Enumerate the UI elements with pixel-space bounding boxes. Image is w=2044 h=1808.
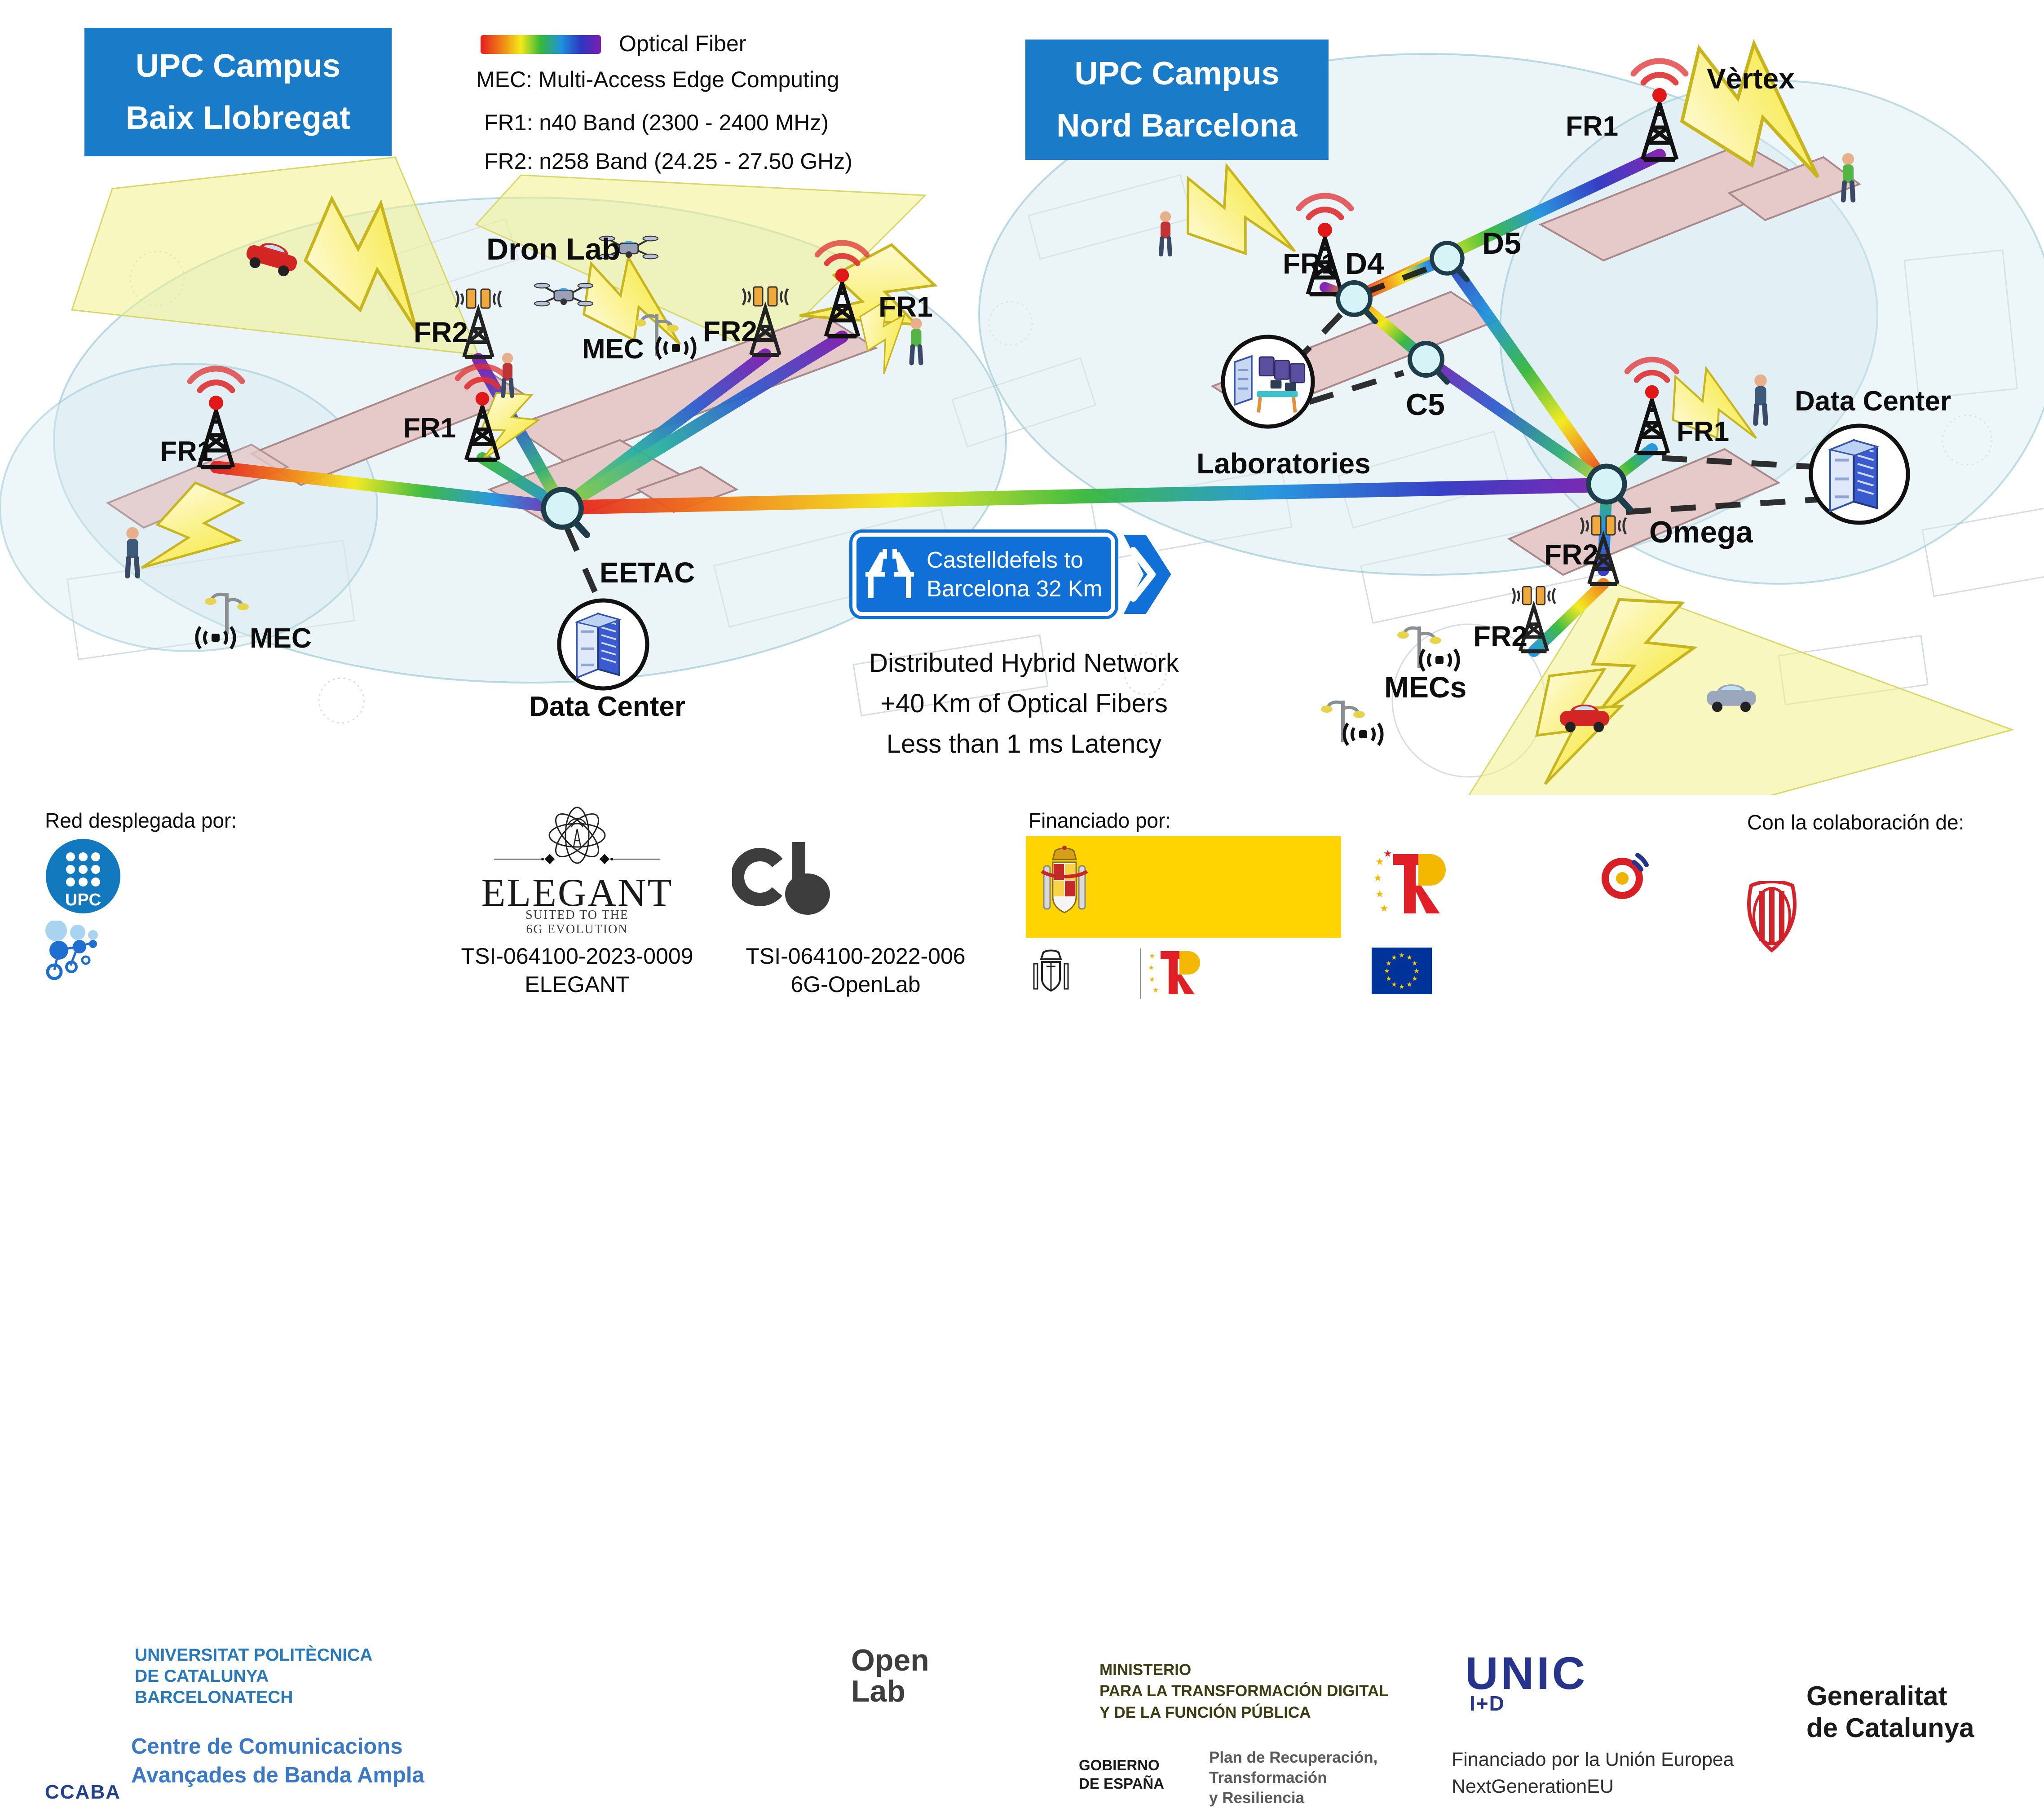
map-label-fr2-left-a: FR2	[414, 316, 468, 349]
optical-fiber-gradient-swatch	[481, 35, 601, 54]
map-label-data-center-left: Data Center	[529, 691, 685, 723]
generalitat-line1: Generalitat	[1806, 1680, 1974, 1712]
campus-right-title-line1: UPC Campus	[1074, 57, 1279, 90]
upc-name-line2: DE CATALUNYA	[135, 1666, 372, 1687]
map-label-eetac: EETAC	[600, 556, 695, 589]
upc-name-line1: UNIVERSITAT POLITÈCNICA	[135, 1645, 372, 1666]
ccaba-logo-text: CCABA	[45, 1781, 121, 1804]
plan-line3: y Resiliencia	[1209, 1788, 1377, 1808]
unico-id-text: I+D	[1470, 1691, 1505, 1715]
generalitat-name: Generalitat de Catalunya	[1806, 1680, 1974, 1744]
stats-line1: Distributed Hybrid Network	[817, 643, 1231, 684]
ccaba-name-line2: Avançades de Banda Ampla	[131, 1761, 424, 1790]
map-label-fr1-omega: FR1	[1677, 416, 1729, 448]
legend-fr2-definition: FR2: n258 Band (24.25 - 27.50 GHz)	[484, 148, 852, 174]
map-label-fr1-left-far: FR1	[160, 436, 212, 467]
ministerio-line3: Y DE LA FUNCIÓN PÚBLICA	[1099, 1702, 1389, 1723]
road-sign-line1: Castelldefels to	[927, 546, 1102, 574]
network-stats: Distributed Hybrid Network +40 Km of Opt…	[817, 643, 1231, 764]
map-label-fr2-right-a: FR2	[1544, 538, 1598, 571]
campus-box-nord-barcelona: UPC Campus Nord Barcelona	[1025, 40, 1329, 160]
motorway-icon	[865, 548, 915, 601]
generalitat-line2: de Catalunya	[1806, 1712, 1974, 1744]
ministerio-line1: MINISTERIO	[1099, 1659, 1389, 1680]
map-label-vertex: Vèrtex	[1707, 62, 1795, 95]
road-sign-castelldefels-barcelona: Castelldefels to Barcelona 32 Km	[852, 533, 1115, 616]
eu-funding-text: Financiado por la Unión Europea NextGene…	[1452, 1746, 1734, 1800]
ministerio-line2: PARA LA TRANSFORMACIÓN DIGITAL	[1099, 1680, 1389, 1702]
campus-right-title-line2: Nord Barcelona	[1056, 110, 1297, 142]
stats-line2: +40 Km of Optical Fibers	[817, 684, 1231, 724]
stats-line3: Less than 1 ms Latency	[817, 724, 1231, 764]
map-label-fr1-left-mid: FR1	[403, 412, 456, 444]
plan-recuperacion-name: Plan de Recuperación, Transformación y R…	[1209, 1748, 1377, 1808]
ccaba-name: Centre de Comunicacions Avançades de Ban…	[131, 1733, 424, 1790]
map-label-mec-left-top: MEC	[582, 333, 644, 365]
campus-box-baix-llobregat: UPC Campus Baix Llobregat	[84, 28, 392, 156]
map-label-dron-lab: Dron Lab	[486, 232, 620, 267]
map-label-fr1-right: FR1	[1283, 247, 1337, 280]
map-label-c5: C5	[1406, 387, 1445, 422]
map-label-fr1-vertex: FR1	[1566, 110, 1618, 142]
map-label-d5: D5	[1482, 226, 1521, 261]
map-label-fr2-left-b: FR2	[703, 315, 757, 348]
plan-line2: Transformación	[1209, 1768, 1377, 1788]
campus-left-title-line1: UPC Campus	[136, 50, 340, 82]
infographic-page: { "titles": { "left_line1": "UPC Campus"…	[0, 0, 2044, 1040]
gobierno-name: GOBIERNO DE ESPAÑA	[1079, 1756, 1164, 1793]
legend-optical-fiber-label: Optical Fiber	[619, 31, 746, 57]
legend-mec-definition: MEC: Multi-Access Edge Computing	[476, 66, 839, 93]
eu-line1: Financiado por la Unión Europea	[1452, 1746, 1734, 1773]
map-label-laboratories: Laboratories	[1196, 447, 1371, 480]
ccaba-name-line1: Centre de Comunicacions	[131, 1733, 424, 1761]
road-sign-line2: Barcelona 32 Km	[927, 574, 1102, 603]
openlab-logo-text: Open Lab	[851, 1645, 929, 1707]
map-label-data-center-right: Data Center	[1795, 385, 1951, 417]
map-label-fr1-left-top: FR1	[879, 290, 933, 323]
plan-line1: Plan de Recuperación,	[1209, 1748, 1377, 1768]
map-label-mec-left-bottom: MEC	[250, 622, 312, 654]
campus-left-title-line2: Baix Llobregat	[126, 102, 350, 134]
legend-fr1-definition: FR1: n40 Band (2300 - 2400 MHz)	[484, 110, 829, 136]
eu-line2: NextGenerationEU	[1452, 1773, 1734, 1800]
ministerio-name: MINISTERIO PARA LA TRANSFORMACIÓN DIGITA…	[1099, 1659, 1389, 1723]
gobierno-line2: DE ESPAÑA	[1079, 1774, 1164, 1793]
map-label-fr2-right-b: FR2	[1473, 620, 1527, 653]
map-label-mecs: MECs	[1384, 670, 1466, 704]
upc-name: UNIVERSITAT POLITÈCNICA DE CATALUNYA BAR…	[135, 1645, 372, 1708]
map-label-d4: D4	[1345, 246, 1384, 281]
gobierno-line1: GOBIERNO	[1079, 1756, 1164, 1774]
openlab-logo-line2: Lab	[851, 1676, 929, 1707]
upc-name-line3: BARCELONATECH	[135, 1687, 372, 1708]
map-label-omega: Omega	[1649, 515, 1753, 550]
road-sign-chevron-icon	[1121, 533, 1174, 616]
openlab-logo-line1: Open	[851, 1645, 929, 1676]
